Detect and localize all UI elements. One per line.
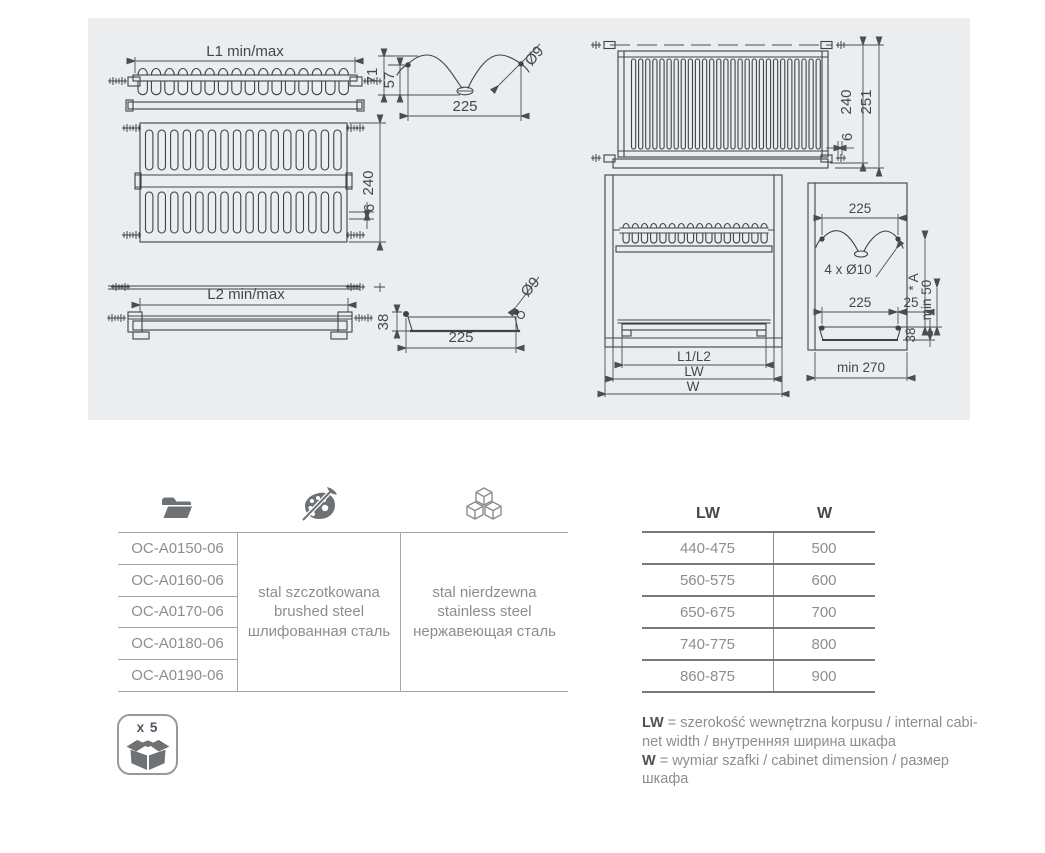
dim-label-6-front: 6 — [839, 133, 856, 141]
dim-label-240-top: 240 — [360, 170, 377, 195]
dim-label-57: 57 — [381, 72, 398, 89]
legend-entry: W = wymiar szafki / cabinet dimension / … — [642, 752, 1027, 790]
drawing-tray-profile: 38 Ø9 225 — [375, 274, 543, 353]
legend-text: = szerokość wewnętrzna korpusu / interna… — [642, 715, 978, 750]
dim-label-w: W — [687, 379, 700, 394]
box-icon — [125, 735, 171, 771]
catalog-page: L1 min/max — [0, 0, 1045, 853]
drawing-rack-front-view: 240 251 6 — [591, 41, 884, 168]
size-table: LW W 440-475 500 560-575 600 650-675 700… — [642, 501, 875, 693]
order-codes-column: OC-A0150-06 OC-A0160-06 OC-A0170-06 OC-A… — [118, 533, 237, 691]
dim-label-71: 71 — [364, 68, 381, 85]
size-row: 440-475 500 — [642, 533, 875, 565]
dim-label-l1: L1 min/max — [206, 43, 284, 60]
legend-entry: LW = szerokość wewnętrzna korpusu / inte… — [642, 714, 1027, 752]
size-cell-w: 600 — [774, 565, 874, 595]
size-header-lw: LW — [642, 501, 774, 531]
dim-label-38-tray: 38 — [375, 314, 392, 331]
dim-label-4xd10: 4 x Ø10 — [824, 262, 871, 277]
legend-text: = wymiar szafki / cabinet dimension / ра… — [642, 753, 949, 788]
dim-label-lw: LW — [684, 364, 704, 379]
drawing-rack-top-view: 240 6 — [122, 123, 386, 242]
dim-label-min50: min 50 — [919, 280, 934, 321]
drawing-hook-profile: 71 57 Ø9 225 — [364, 43, 547, 121]
dim-label-251-front: 251 — [858, 89, 875, 114]
size-row: 560-575 600 — [642, 565, 875, 597]
size-row: 650-675 700 — [642, 597, 875, 629]
size-cell-lw: 440-475 — [642, 533, 774, 563]
packaging-badge: x 5 — [117, 714, 178, 775]
drawing-cabinet-side-view: 225 4 x Ø10 225 25 * A min 50 38 — [808, 183, 942, 381]
dim-label-d9-hook: Ø9 — [522, 43, 548, 69]
legend: LW = szerokość wewnętrzna korpusu / inte… — [642, 714, 1027, 789]
size-cell-lw: 860-875 — [642, 661, 774, 691]
dim-label-25: 25 — [903, 295, 918, 310]
legend-term: W — [642, 753, 656, 769]
order-code-cell: OC-A0180-06 — [118, 628, 237, 660]
size-cell-lw: 560-575 — [642, 565, 774, 595]
palette-icon — [299, 487, 339, 527]
folder-icon — [160, 492, 193, 524]
drawing-rack-side-view: L1 min/max — [108, 43, 382, 111]
dim-label-d9-tray: Ø9 — [518, 274, 544, 300]
dim-label-min270: min 270 — [837, 360, 885, 375]
order-code-cell: OC-A0160-06 — [118, 565, 237, 597]
dim-label-225-side-top: 225 — [849, 201, 872, 216]
size-row: 740-775 800 — [642, 629, 875, 661]
dim-label-l2: L2 min/max — [207, 286, 285, 303]
size-row: 860-875 900 — [642, 661, 875, 693]
size-cell-w: 900 — [774, 661, 874, 691]
cubes-icon — [466, 487, 502, 526]
size-cell-w: 800 — [774, 629, 874, 659]
dim-label-6-top: 6 — [361, 204, 378, 212]
dim-label-38-side: 38 — [903, 327, 918, 342]
size-cell-lw: 650-675 — [642, 597, 774, 627]
order-code-cell: OC-A0190-06 — [118, 660, 237, 691]
dim-label-225-tray: 225 — [448, 329, 473, 346]
dim-label-225-hook: 225 — [452, 98, 477, 115]
order-code-cell: OC-A0150-06 — [118, 533, 237, 565]
dim-label-225-side-bottom: 225 — [849, 295, 872, 310]
size-cell-w: 700 — [774, 597, 874, 627]
size-cell-lw: 740-775 — [642, 629, 774, 659]
drawing-tray-side-view: L2 min/max — [107, 283, 385, 339]
drawing-cabinet-front-view: L1/L2 LW W — [605, 175, 782, 397]
technical-drawing-panel: L1 min/max — [88, 18, 970, 420]
size-table-header: LW W — [642, 501, 875, 531]
size-header-w: W — [774, 501, 875, 531]
dim-label-l1l2: L1/L2 — [677, 349, 711, 364]
packaging-quantity: x 5 — [119, 720, 176, 735]
dim-label-240-front: 240 — [838, 89, 855, 114]
order-table: OC-A0150-06 OC-A0160-06 OC-A0170-06 OC-A… — [118, 532, 568, 692]
legend-term: LW — [642, 715, 664, 731]
size-cell-w: 500 — [774, 533, 874, 563]
finish-cell: stal szczotkowana brushed steel шлифован… — [237, 533, 400, 691]
order-code-cell: OC-A0170-06 — [118, 597, 237, 629]
material-cell: stal nierdzewna stainless steel нержавею… — [400, 533, 568, 691]
technical-drawing: L1 min/max — [88, 18, 970, 420]
